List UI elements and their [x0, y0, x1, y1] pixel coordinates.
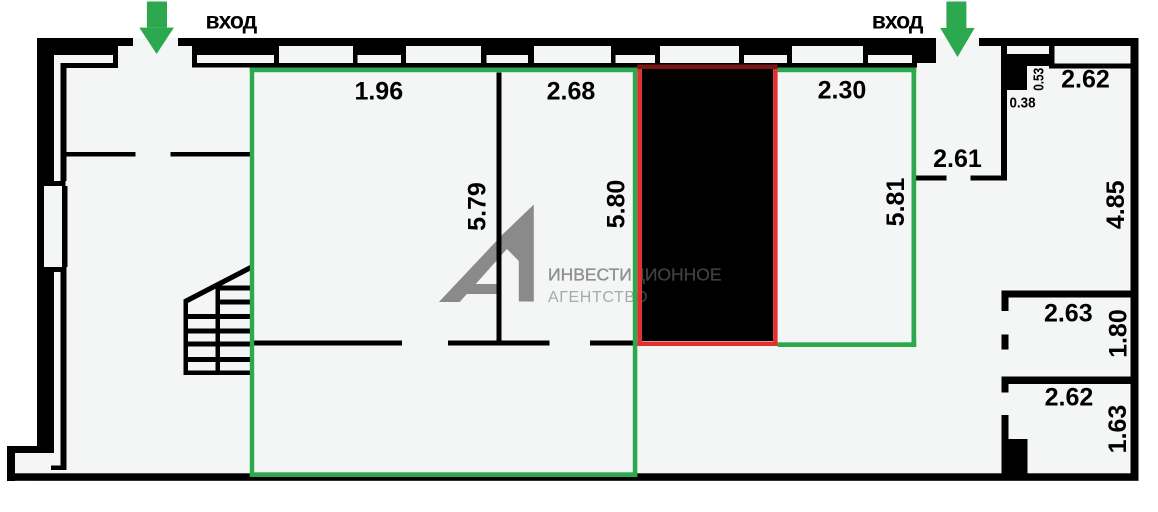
svg-text:0.53: 0.53: [1031, 68, 1048, 91]
svg-text:вход: вход: [872, 8, 924, 34]
svg-text:1.80: 1.80: [1104, 309, 1132, 358]
svg-text:0.38: 0.38: [1010, 94, 1036, 111]
svg-text:2.62: 2.62: [1061, 66, 1110, 94]
svg-text:4.85: 4.85: [1102, 180, 1130, 229]
svg-text:2.68: 2.68: [547, 78, 596, 106]
svg-text:1.96: 1.96: [354, 78, 403, 106]
svg-text:2.63: 2.63: [1044, 300, 1093, 328]
svg-text:5.81: 5.81: [882, 178, 910, 227]
svg-text:5.80: 5.80: [603, 180, 631, 229]
svg-text:2.30: 2.30: [818, 77, 867, 105]
svg-text:5.79: 5.79: [464, 182, 492, 231]
svg-text:1.63: 1.63: [1104, 405, 1132, 454]
svg-text:2.61: 2.61: [933, 145, 982, 173]
svg-text:вход: вход: [206, 8, 258, 34]
svg-text:2.62: 2.62: [1045, 384, 1094, 412]
